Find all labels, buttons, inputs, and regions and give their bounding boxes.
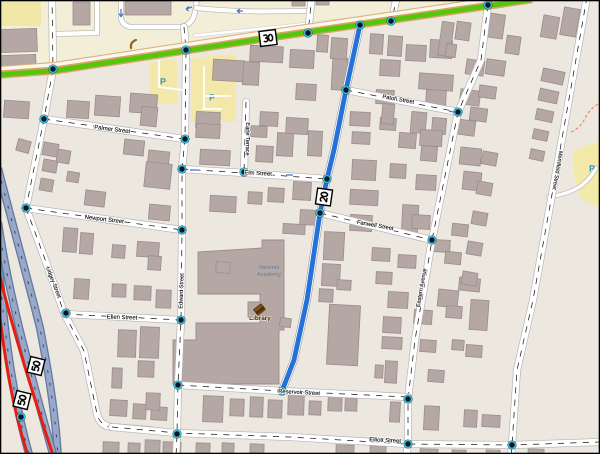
svg-text:P: P (209, 93, 215, 103)
svg-text:Edward Street: Edward Street (177, 273, 185, 309)
svg-text:Elm Street: Elm Street (244, 169, 272, 177)
svg-text:Academy: Academy (257, 271, 281, 278)
svg-text:Vanenni: Vanenni (259, 264, 280, 271)
svg-text:P: P (589, 164, 595, 174)
svg-text:Library: Library (249, 315, 271, 322)
svg-text:Earle Terrace: Earle Terrace (244, 122, 252, 155)
svg-text:P: P (160, 77, 166, 87)
svg-text:Ellen Street: Ellen Street (107, 313, 138, 321)
